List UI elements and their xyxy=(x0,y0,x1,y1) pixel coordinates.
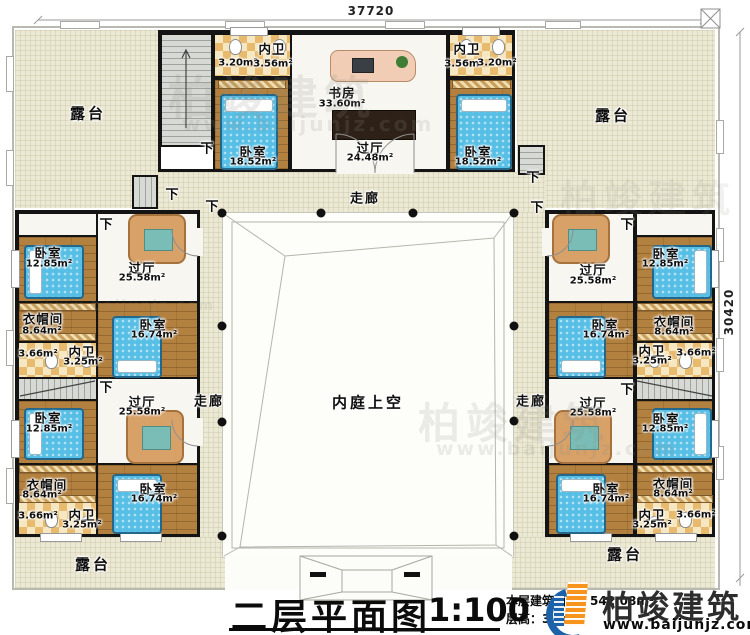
area-label: 16.74m² xyxy=(131,330,177,341)
window xyxy=(462,27,500,36)
area-label: 12.85m² xyxy=(26,424,72,435)
down-label: 下 xyxy=(530,197,543,216)
area-label: 33.60m² xyxy=(319,99,365,110)
area-label: 8.64m² xyxy=(22,326,61,337)
title-underline xyxy=(229,628,500,631)
down-label: 下 xyxy=(620,379,633,398)
area-label: 12.85m² xyxy=(642,259,688,270)
floor-plan: 37720 30420 露台 露台 露台 露台 走廊 走廊 走廊 内庭上空 下 … xyxy=(0,0,750,635)
column-dot xyxy=(510,322,519,331)
wing-stairs-left xyxy=(17,377,98,401)
area-label: 16.74m² xyxy=(583,494,629,505)
down-label: 下 xyxy=(99,377,112,396)
area-label: 18.52m² xyxy=(455,157,501,168)
column-dot xyxy=(510,417,519,426)
window xyxy=(11,420,20,458)
window xyxy=(655,533,697,542)
terrace-label: 露台 xyxy=(607,544,643,565)
logo-url: www.baijunjz.com xyxy=(603,617,750,633)
double-door-gap xyxy=(336,165,414,174)
corridor-right xyxy=(512,212,545,560)
room-label: 内卫 xyxy=(453,39,480,58)
logo-building-blue-icon xyxy=(554,596,564,626)
terrace-label: 露台 xyxy=(70,103,106,124)
logo-glyph-icon xyxy=(546,578,598,632)
door-gap xyxy=(542,418,551,446)
corridor-label: 走廊 xyxy=(516,391,546,410)
down-label: 下 xyxy=(205,196,218,215)
area-label: 8.64m² xyxy=(653,489,692,500)
column-dot xyxy=(218,418,227,427)
terrace-stairs-left xyxy=(132,175,158,209)
wardrobe xyxy=(218,80,286,89)
down-label: 下 xyxy=(99,214,112,233)
sofa-set xyxy=(128,214,186,264)
column-dot xyxy=(409,209,418,218)
column-dot xyxy=(510,209,519,218)
parapet-bump xyxy=(716,120,724,154)
area-label: 3.56m² xyxy=(253,59,292,70)
column-dot xyxy=(218,209,227,218)
parapet-bump xyxy=(6,150,14,186)
hall-table xyxy=(332,110,416,140)
computer-icon xyxy=(352,58,374,73)
area-label: 3.25m² xyxy=(63,357,102,368)
column-dot xyxy=(218,532,227,541)
sofa-set xyxy=(126,410,184,464)
area-label: 3.66m² xyxy=(676,348,715,359)
entry-bay xyxy=(225,556,512,590)
area-label: 25.58m² xyxy=(119,273,165,284)
terrace-label: 露台 xyxy=(595,105,631,126)
area-label: 3.20m² xyxy=(477,58,516,69)
parapet-bump xyxy=(385,21,425,29)
door-gap xyxy=(542,228,551,256)
area-label: 12.85m² xyxy=(26,259,72,270)
window xyxy=(40,533,82,542)
stairwell xyxy=(160,33,213,147)
room-label: 内卫 xyxy=(258,39,285,58)
area-label: 18.52m² xyxy=(230,157,276,168)
parapet-bump xyxy=(60,21,100,29)
dimension-right: 30420 xyxy=(722,289,736,336)
closet xyxy=(637,303,713,311)
door-gap xyxy=(194,228,203,256)
courtyard-void xyxy=(222,212,514,558)
door-gap xyxy=(194,418,203,446)
column-dot xyxy=(510,532,519,541)
terrace-label: 露台 xyxy=(75,554,111,575)
area-label: 3.66m² xyxy=(18,511,57,522)
down-label: 下 xyxy=(200,138,213,157)
window xyxy=(11,250,20,288)
column-dot xyxy=(317,209,326,218)
area-label: 3.20m² xyxy=(218,58,257,69)
area-label: 8.64m² xyxy=(654,327,693,338)
parapet-bump xyxy=(6,56,14,92)
area-label: 25.58m² xyxy=(570,276,616,287)
courtyard-label: 内庭上空 xyxy=(332,392,404,413)
corridor-label: 走廊 xyxy=(350,188,380,207)
sofa-set xyxy=(552,214,610,264)
area-label: 25.58m² xyxy=(570,408,616,419)
down-label: 下 xyxy=(620,214,633,233)
area-label: 16.74m² xyxy=(583,330,629,341)
parapet-bump xyxy=(545,21,581,29)
area-label: 25.58m² xyxy=(119,407,165,418)
area-label: 12.85m² xyxy=(642,424,688,435)
logo-building-orange-icon xyxy=(564,582,588,626)
wardrobe xyxy=(452,80,511,89)
window xyxy=(120,533,162,542)
closet xyxy=(19,465,96,473)
window xyxy=(570,533,612,542)
parapet-bump xyxy=(6,468,14,504)
area-label: 3.25m² xyxy=(632,356,671,367)
corridor-left xyxy=(198,212,224,560)
area-label: 3.66m² xyxy=(18,349,57,360)
down-label: 下 xyxy=(526,167,539,186)
area-label: 3.25m² xyxy=(632,520,671,531)
dimension-top: 37720 xyxy=(348,4,395,18)
area-label: 24.48m² xyxy=(347,153,393,164)
window xyxy=(230,27,268,36)
parapet-bump xyxy=(716,338,724,372)
plant-icon xyxy=(396,56,408,68)
area-label: 3.66m² xyxy=(676,510,715,521)
area-label: 3.25m² xyxy=(62,520,101,531)
corridor-label: 走廊 xyxy=(194,391,224,410)
down-label: 下 xyxy=(165,184,178,203)
area-label: 16.74m² xyxy=(131,494,177,505)
closet xyxy=(637,465,713,473)
parapet-bump xyxy=(6,330,14,366)
area-label: 8.64m² xyxy=(22,490,61,501)
column-dot xyxy=(218,322,227,331)
wing-stairs-right xyxy=(635,377,715,401)
